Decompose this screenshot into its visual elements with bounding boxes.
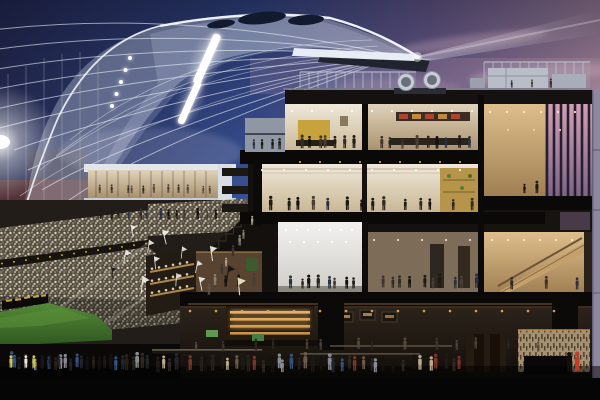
desk-lamp <box>165 289 168 292</box>
ceiling-light <box>327 169 329 171</box>
led-dot <box>73 253 75 255</box>
tv-screen-green <box>206 330 218 337</box>
ceiling-light <box>371 110 373 112</box>
ceiling-light <box>471 110 473 112</box>
ceiling-light <box>523 111 525 113</box>
tv-screen-green <box>252 334 264 341</box>
doors <box>466 330 506 372</box>
ceiling-light <box>283 169 285 171</box>
render-shape <box>552 74 586 88</box>
back-bar-shelves <box>222 306 320 346</box>
ceiling-light <box>491 239 493 241</box>
ceiling-light <box>318 229 320 231</box>
dark-pillar <box>318 296 344 350</box>
ceiling-light <box>411 110 413 112</box>
desk-lamp <box>158 266 161 269</box>
mast-lamp <box>115 92 119 96</box>
led-dot <box>109 248 111 250</box>
pendant-light <box>475 310 478 313</box>
render-shape <box>401 77 411 87</box>
ceiling-light <box>571 239 573 241</box>
render-shape <box>222 340 320 346</box>
render-shape <box>246 258 258 271</box>
render-shape <box>438 114 447 119</box>
render-shape <box>427 75 437 85</box>
ceiling-light <box>289 241 291 243</box>
desk-lamp <box>186 285 189 288</box>
ground-base <box>0 378 600 400</box>
desk-lamp <box>172 276 175 279</box>
ceiling-light <box>451 110 453 112</box>
render-shape <box>447 174 451 178</box>
mast-lamp <box>110 104 114 108</box>
desk-lamp <box>158 290 161 293</box>
ceiling-light <box>351 229 353 231</box>
led <box>399 161 401 163</box>
render-shape <box>451 114 460 119</box>
led-dot <box>49 256 51 258</box>
led <box>379 161 381 163</box>
desk-lamp <box>151 267 154 270</box>
pendant-light <box>241 310 244 313</box>
pendant-light <box>501 310 504 313</box>
ceiling-light <box>555 239 557 241</box>
ceiling-light <box>291 110 293 112</box>
render-shape <box>363 313 372 316</box>
led-dot <box>61 254 63 256</box>
mast-lamp <box>128 56 132 60</box>
render-shape <box>399 114 408 119</box>
render-shape <box>412 114 421 119</box>
desk-lamp <box>186 261 189 264</box>
desk-lamp <box>165 277 168 280</box>
ceiling-light <box>329 229 331 231</box>
ceiling-light <box>533 129 535 131</box>
desk-lamp <box>165 265 168 268</box>
render-shape <box>458 246 470 288</box>
ceiling-light <box>421 239 423 241</box>
desk-lamp <box>179 286 182 289</box>
desk-lamp <box>151 279 154 282</box>
render-shape <box>488 68 548 88</box>
led-dot <box>85 251 87 253</box>
ceiling-light <box>437 169 439 171</box>
rendering-canvas <box>0 0 600 400</box>
pendant-light <box>293 310 296 313</box>
render-shape <box>340 116 348 126</box>
bar-signage <box>396 112 470 121</box>
media-suite <box>196 252 262 292</box>
render-shape <box>584 232 592 293</box>
led-dot <box>37 258 39 260</box>
ceiling-light <box>506 111 508 113</box>
led <box>319 161 321 163</box>
floor-slab <box>484 196 600 210</box>
render-shape <box>560 212 590 230</box>
desk-lamp <box>172 288 175 291</box>
render-shape <box>425 114 434 119</box>
ceiling-light <box>317 241 319 243</box>
ceiling-light <box>305 169 307 171</box>
ceiling-light <box>261 169 263 171</box>
ceiling-light <box>331 110 333 112</box>
pendant-light <box>397 310 400 313</box>
pendant-light <box>319 310 322 313</box>
structural-column <box>478 95 484 293</box>
desk-lamp <box>179 262 182 265</box>
ceiling-light <box>311 110 313 112</box>
pendant-light <box>423 310 426 313</box>
pendant-light <box>449 310 452 313</box>
render-shape <box>468 174 472 178</box>
ceiling-light <box>296 229 298 231</box>
render-shape <box>470 78 484 88</box>
led <box>459 161 461 163</box>
desk-lamp <box>172 264 175 267</box>
ceiling-light <box>371 169 373 171</box>
ceiling-light <box>331 241 333 243</box>
led <box>299 161 301 163</box>
ceiling-light <box>431 110 433 112</box>
pendant-light <box>371 310 374 313</box>
led-dot <box>133 244 135 246</box>
dark-pillar <box>552 292 578 330</box>
pendant-light <box>267 310 270 313</box>
render-shape <box>278 286 362 292</box>
ceiling-light <box>415 169 417 171</box>
ceiling-light <box>557 111 559 113</box>
ceiling-light <box>303 241 305 243</box>
ceiling-light <box>507 239 509 241</box>
ceiling-light <box>507 129 509 131</box>
render-shape <box>230 325 310 328</box>
render-shape <box>230 318 310 321</box>
render-shape <box>362 222 368 292</box>
ceiling-light <box>393 169 395 171</box>
ceiling-light <box>391 110 393 112</box>
ceiling-light <box>489 111 491 113</box>
led <box>359 161 361 163</box>
led-dot <box>97 249 99 251</box>
ceiling-light <box>307 229 309 231</box>
exterior-facade <box>592 90 600 378</box>
led <box>339 161 341 163</box>
ceiling-light <box>559 129 561 131</box>
pendant-light <box>215 310 218 313</box>
desk-lamp <box>158 278 161 281</box>
led <box>439 161 441 163</box>
ceiling-light <box>345 241 347 243</box>
stadium-cutaway-rendering <box>0 0 600 400</box>
led-dot <box>25 259 27 261</box>
mast-lamp <box>124 68 128 72</box>
pendant-light <box>189 310 192 313</box>
render-shape <box>460 186 464 190</box>
ceiling-light <box>469 239 471 241</box>
ceiling-light <box>459 169 461 171</box>
ceiling-light <box>574 111 576 113</box>
desk-lamp <box>186 273 189 276</box>
atrium-mullions <box>547 104 589 196</box>
ceiling-light <box>351 110 353 112</box>
ceiling-light <box>397 239 399 241</box>
ceiling-light <box>445 239 447 241</box>
ceiling-light <box>540 111 542 113</box>
ceiling-light <box>340 229 342 231</box>
led <box>419 161 421 163</box>
render-shape <box>385 315 394 318</box>
render-shape <box>230 332 310 335</box>
ceiling-light <box>373 239 375 241</box>
led-dot <box>121 246 123 248</box>
led-dot <box>13 261 15 263</box>
pendant-light <box>527 310 530 313</box>
render-shape <box>362 104 368 152</box>
mast-lamp <box>119 80 123 84</box>
ceiling-light <box>539 239 541 241</box>
ceiling-light <box>523 239 525 241</box>
led-dot <box>1 263 3 265</box>
pendant-light <box>345 310 348 313</box>
desk-lamp <box>151 291 154 294</box>
ceiling-light <box>285 229 287 231</box>
ceiling-light <box>349 169 351 171</box>
pendant-light <box>553 310 556 313</box>
